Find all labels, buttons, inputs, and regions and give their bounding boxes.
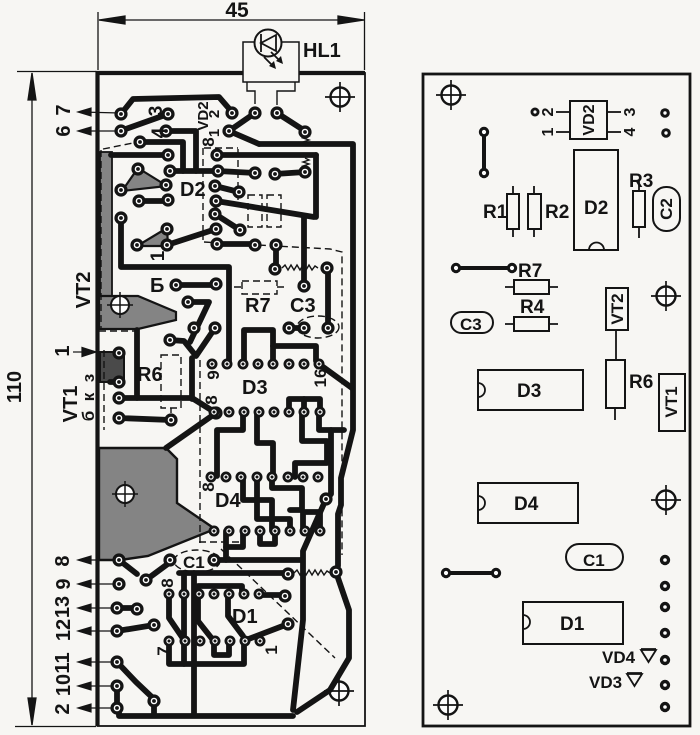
- svg-text:R2: R2: [545, 202, 569, 223]
- svg-text:C3: C3: [460, 315, 482, 334]
- svg-text:D4: D4: [514, 494, 539, 515]
- svg-text:C1: C1: [583, 551, 605, 570]
- svg-text:2: 2: [52, 703, 74, 714]
- svg-text:VD3: VD3: [589, 673, 622, 692]
- svg-text:VT1: VT1: [662, 386, 681, 417]
- svg-text:16: 16: [311, 369, 330, 388]
- svg-text:11: 11: [52, 652, 74, 673]
- svg-text:C3: C3: [290, 295, 316, 317]
- svg-text:R6: R6: [137, 364, 163, 386]
- svg-text:D3: D3: [242, 377, 268, 399]
- svg-text:4: 4: [622, 127, 639, 136]
- svg-text:R1: R1: [483, 202, 508, 223]
- svg-text:VT2: VT2: [608, 293, 627, 324]
- svg-text:1: 1: [206, 129, 223, 137]
- svg-text:R7: R7: [518, 261, 542, 282]
- svg-text:8: 8: [199, 137, 218, 146]
- svg-text:R6: R6: [629, 372, 653, 393]
- svg-text:к: к: [79, 392, 98, 401]
- svg-text:4: 4: [149, 127, 170, 138]
- svg-text:VD4: VD4: [602, 648, 636, 667]
- svg-text:б: б: [79, 411, 98, 422]
- svg-text:R7: R7: [245, 295, 271, 317]
- svg-text:45: 45: [225, 0, 249, 22]
- svg-text:VD2: VD2: [581, 104, 598, 135]
- svg-text:R3: R3: [629, 171, 653, 192]
- svg-text:6: 6: [53, 125, 75, 136]
- svg-text:Б: Б: [150, 275, 164, 297]
- svg-text:R4: R4: [520, 297, 545, 318]
- svg-text:C1: C1: [183, 553, 205, 572]
- svg-text:10: 10: [53, 674, 75, 696]
- svg-text:D3: D3: [517, 381, 541, 402]
- svg-text:D4: D4: [215, 490, 241, 512]
- svg-text:7: 7: [154, 646, 173, 655]
- svg-text:D1: D1: [232, 606, 258, 628]
- svg-text:8: 8: [158, 578, 177, 587]
- svg-text:8: 8: [202, 395, 221, 404]
- svg-text:110: 110: [4, 371, 26, 403]
- svg-text:1: 1: [148, 250, 169, 261]
- svg-text:VT2: VT2: [73, 272, 95, 309]
- svg-text:з: з: [79, 374, 98, 382]
- svg-text:3: 3: [146, 106, 167, 117]
- svg-text:12: 12: [53, 619, 75, 641]
- svg-text:9: 9: [204, 370, 223, 379]
- svg-text:9: 9: [53, 578, 75, 589]
- svg-text:13: 13: [52, 596, 74, 618]
- svg-text:8: 8: [199, 482, 218, 491]
- svg-text:8: 8: [52, 555, 74, 566]
- svg-text:3: 3: [622, 107, 639, 116]
- svg-text:1: 1: [262, 645, 281, 654]
- svg-text:HL1: HL1: [303, 40, 341, 62]
- svg-text:1: 1: [540, 127, 557, 136]
- svg-text:2: 2: [540, 107, 557, 116]
- svg-text:D2: D2: [180, 179, 206, 201]
- svg-text:D2: D2: [584, 198, 608, 219]
- svg-text:7: 7: [53, 104, 75, 115]
- svg-text:C2: C2: [657, 198, 676, 220]
- svg-text:1: 1: [52, 345, 74, 356]
- svg-text:2: 2: [206, 110, 223, 118]
- svg-text:D1: D1: [560, 614, 585, 635]
